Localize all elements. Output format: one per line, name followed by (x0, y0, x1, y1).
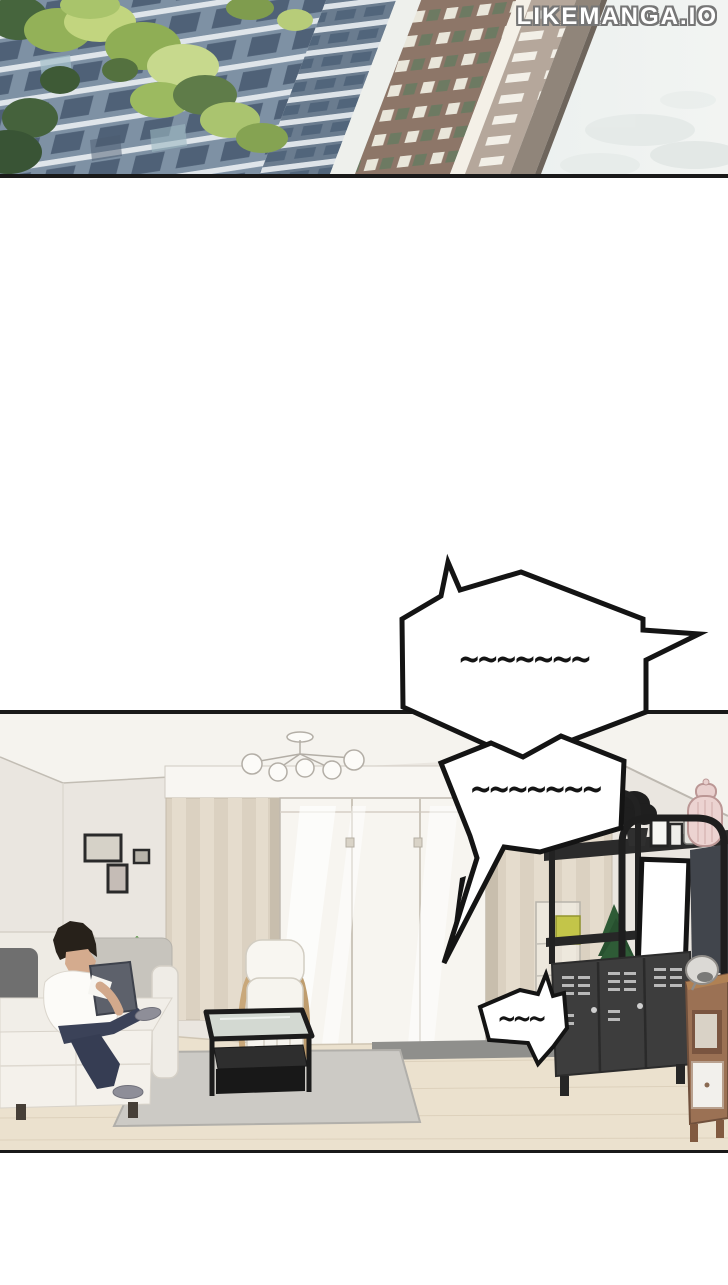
panel-living-room (0, 710, 728, 1153)
coffee-table (206, 1010, 312, 1096)
manga-page: LIKEMANGA.IO (0, 0, 728, 1285)
photo-frame (670, 824, 682, 846)
door-handle (346, 838, 354, 847)
wooden-cabinet (686, 974, 728, 1142)
speech-bubble-3-text: ~~~ (470, 1003, 570, 1036)
speech-bubble-1-text: ~~~~~~~ (438, 640, 608, 679)
slipper (113, 1086, 143, 1099)
living-room-scene (0, 714, 728, 1150)
site-watermark: LIKEMANGA.IO (517, 3, 718, 31)
door-handle (414, 838, 422, 847)
speech-bubble-2-text: ~~~~~~~ (452, 770, 617, 809)
sofa-pillow (0, 948, 38, 1006)
